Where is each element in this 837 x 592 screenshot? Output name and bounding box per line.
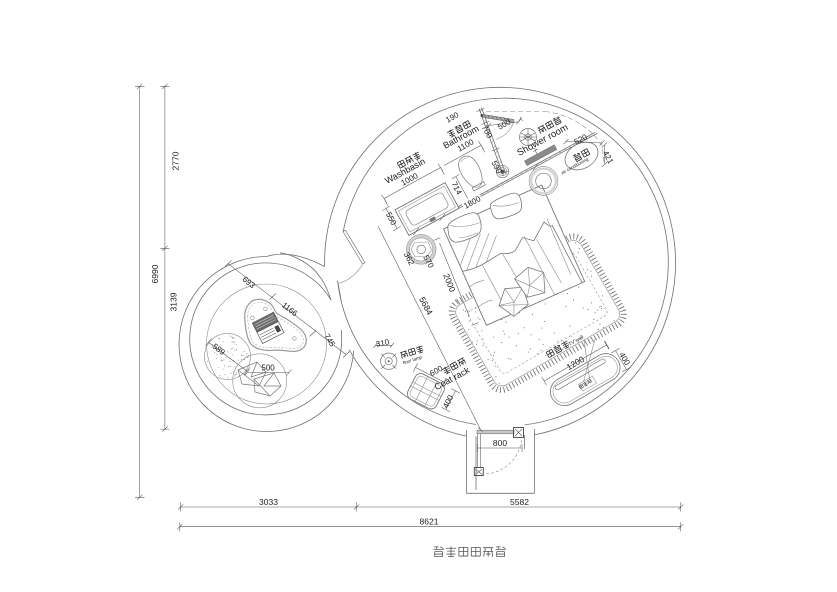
svg-text:5582: 5582 — [510, 497, 529, 507]
svg-text:8621: 8621 — [420, 517, 439, 527]
svg-text:6990: 6990 — [150, 264, 160, 283]
svg-text:3139: 3139 — [169, 292, 179, 311]
svg-text:3033: 3033 — [259, 497, 278, 507]
svg-text:2770: 2770 — [170, 151, 180, 170]
svg-text:500: 500 — [261, 364, 275, 373]
svg-text:800: 800 — [493, 438, 507, 448]
